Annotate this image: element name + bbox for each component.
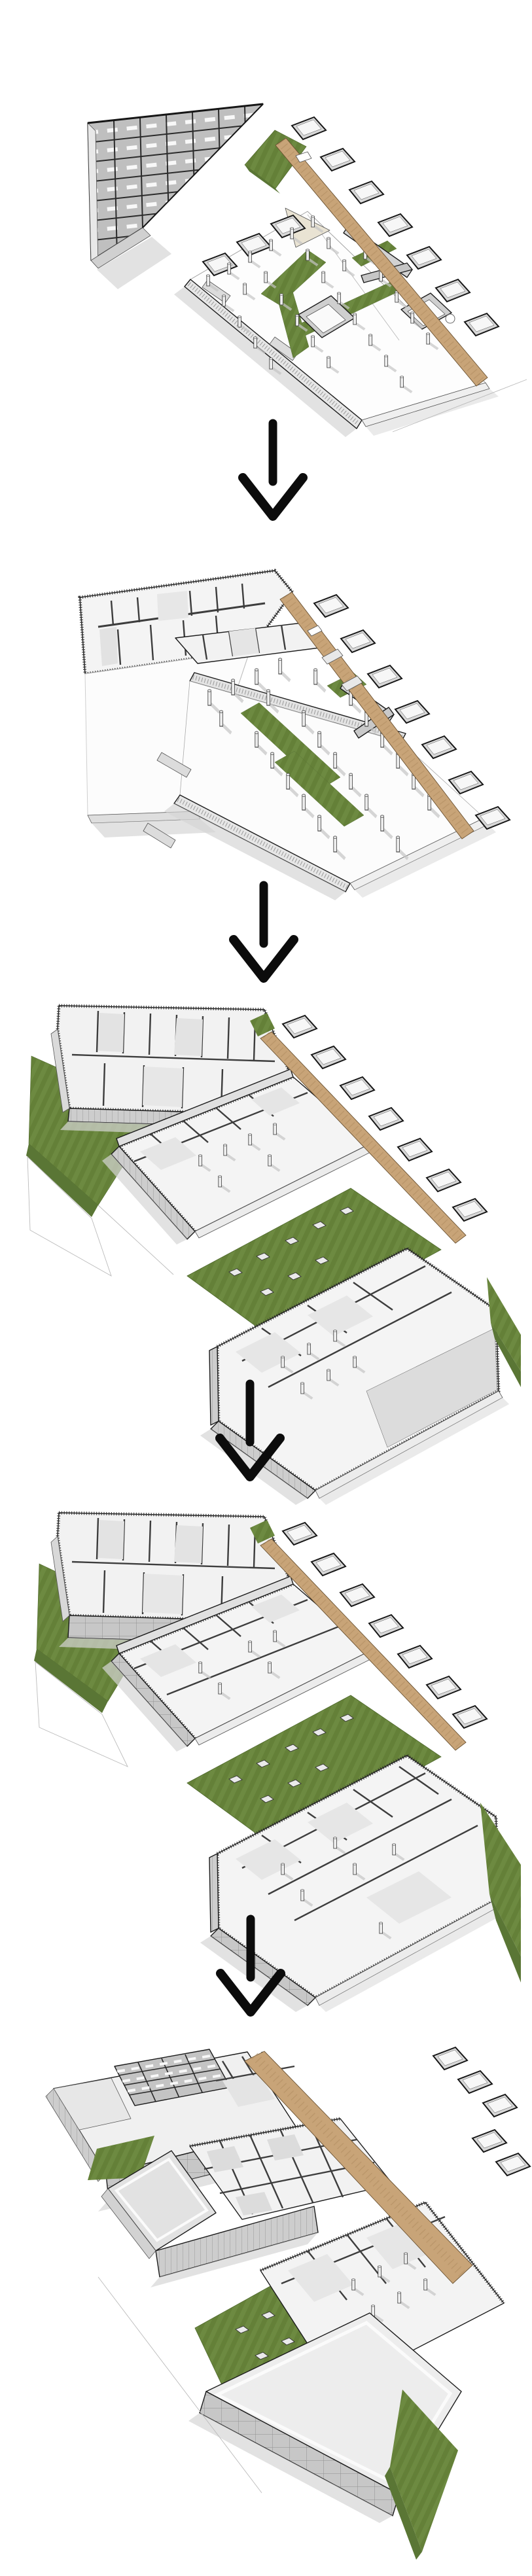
step-3-model [26,1006,521,1505]
step-1-model [88,104,527,437]
massing-sequence-diagram [0,0,532,2576]
upper-wing-plan [80,571,293,674]
step-2-model [80,571,510,900]
down-arrow-icon [243,423,303,516]
survey-mark [446,314,455,323]
step-4-model [34,1513,521,2012]
down-arrow-icon [234,885,294,978]
diagram-canvas [0,0,532,2576]
walkway-rooms [433,2047,530,2176]
grid-roof [88,104,263,268]
step-5-model [46,2047,530,2560]
